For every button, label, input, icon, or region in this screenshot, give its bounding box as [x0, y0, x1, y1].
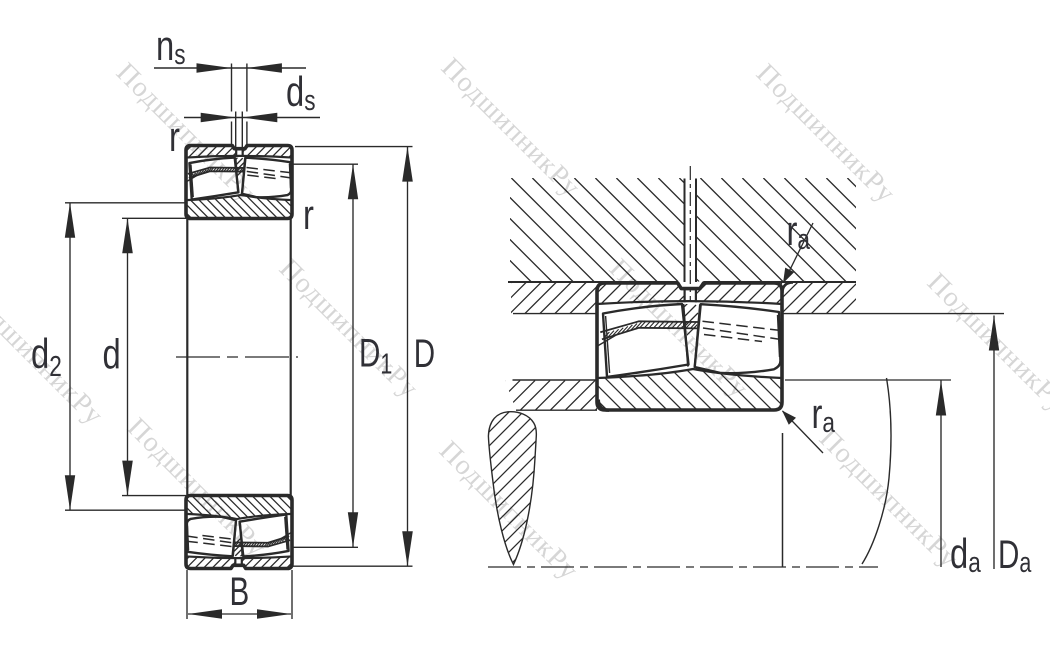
- svg-text:B: B: [230, 570, 250, 614]
- svg-text:r: r: [169, 113, 180, 160]
- svg-text:d: d: [103, 331, 121, 378]
- svg-text:D: D: [414, 332, 435, 376]
- svg-text:r: r: [303, 191, 314, 238]
